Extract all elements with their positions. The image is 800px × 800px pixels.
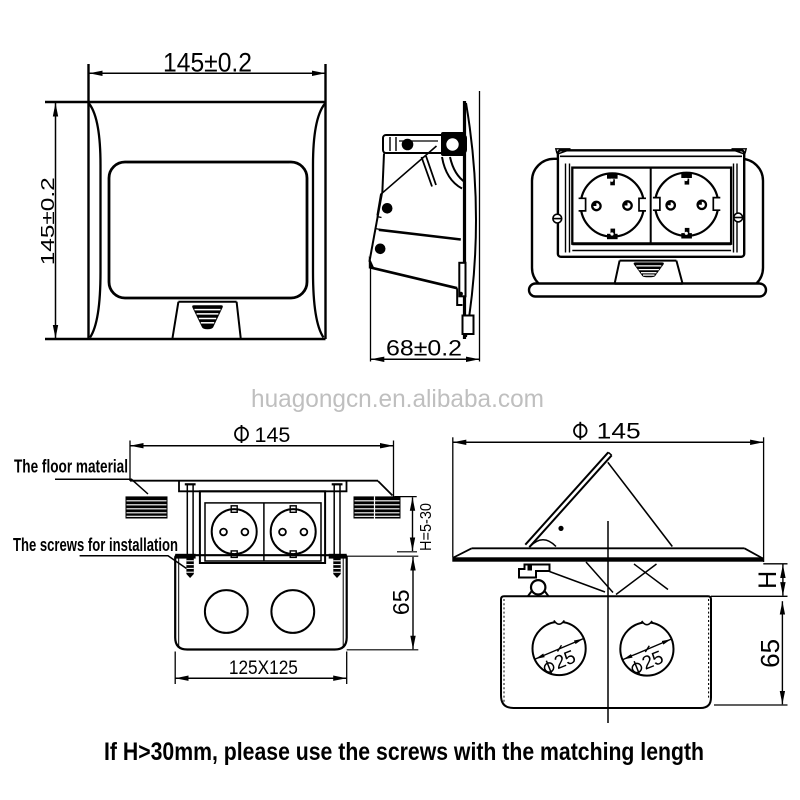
svg-text:145±0.2: 145±0.2 — [38, 177, 58, 265]
svg-text:The floor material: The floor material — [14, 457, 128, 477]
svg-text:65: 65 — [755, 639, 785, 668]
svg-text:If H>30mm, please use the scre: If H>30mm, please use the screws with th… — [104, 738, 704, 766]
svg-text:145: 145 — [255, 423, 291, 447]
svg-text:125X125: 125X125 — [229, 657, 298, 679]
svg-text:H: H — [754, 571, 782, 589]
svg-text:65: 65 — [388, 590, 414, 616]
svg-text:68±0.2: 68±0.2 — [386, 336, 462, 361]
svg-text:145±0.2: 145±0.2 — [163, 48, 252, 78]
svg-text:The screws for installation: The screws for installation — [13, 535, 178, 555]
svg-text:145: 145 — [597, 418, 641, 443]
svg-text:H=5-30: H=5-30 — [418, 503, 435, 551]
svg-text:huagongcn.en.alibaba.com: huagongcn.en.alibaba.com — [251, 385, 544, 413]
